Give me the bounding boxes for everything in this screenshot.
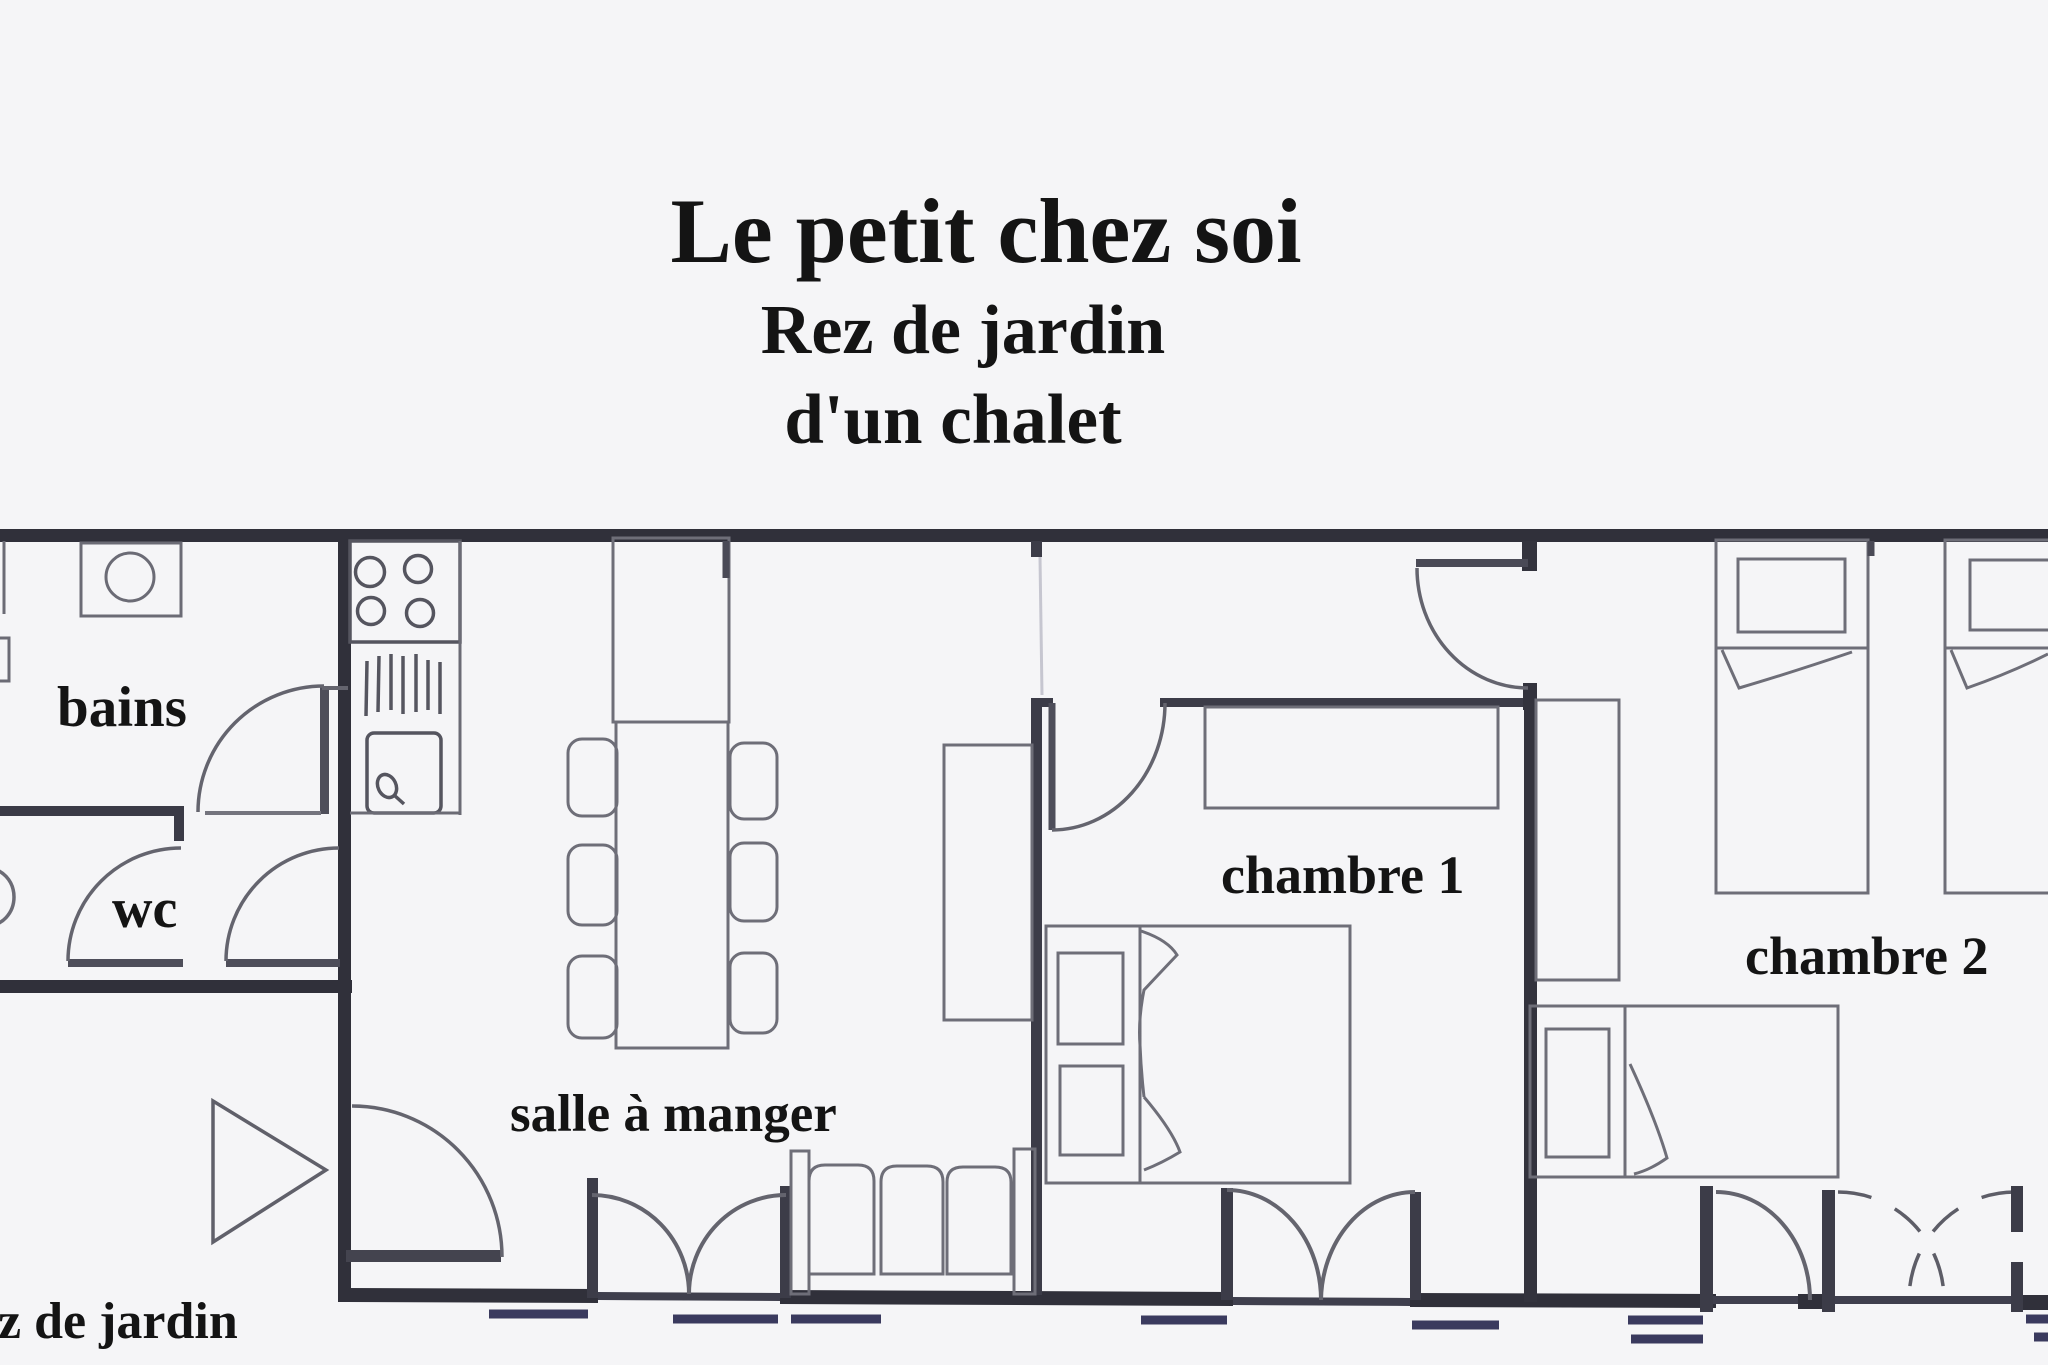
svg-text:bains: bains [57, 676, 187, 739]
svg-text:wc: wc [112, 878, 177, 940]
svg-text:salle à manger: salle à manger [510, 1085, 837, 1143]
svg-text:Rez de jardin: Rez de jardin [761, 292, 1165, 369]
svg-text:chambre 1: chambre 1 [1221, 845, 1464, 905]
svg-text:z de jardin: z de jardin [0, 1293, 238, 1350]
svg-text:chambre 2: chambre 2 [1745, 926, 1988, 986]
svg-text:Le petit chez soi: Le petit chez soi [670, 180, 1301, 282]
svg-text:d'un chalet: d'un chalet [784, 381, 1122, 459]
